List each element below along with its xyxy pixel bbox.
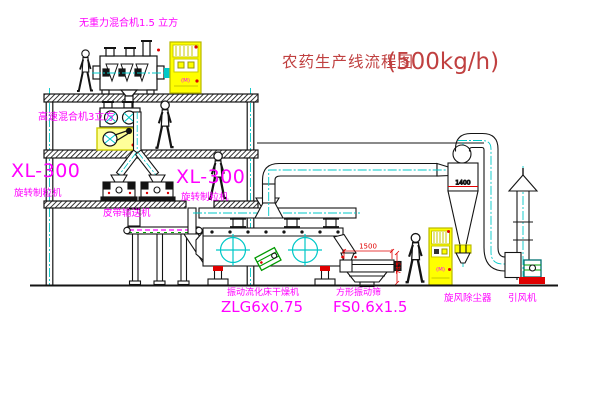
person-figure-level2 xyxy=(155,101,173,148)
label-cyclone: 旋风除尘器 xyxy=(444,292,492,304)
cyclone-dimension-text: 1400 xyxy=(455,180,470,187)
indicator-dot xyxy=(448,268,451,271)
label-belt-conveyor: 皮带输送机 xyxy=(103,207,151,219)
label-dryer-name: 振动流化床干燥机 xyxy=(227,286,299,298)
label-granulator-model-left: XL-300 xyxy=(11,160,80,182)
control-cabinet-top: (M) xyxy=(170,42,201,93)
label-sieve-name: 方形振动筛 xyxy=(336,286,381,298)
control-cabinet-right: (M) xyxy=(429,228,452,285)
label-granulator-model-right: XL-300 xyxy=(176,166,245,188)
label-sieve-model: FS0.6x1.5 xyxy=(333,298,407,316)
cabinet-badge-top: (M) xyxy=(181,78,190,84)
indicator-dot xyxy=(447,230,450,233)
floor-slab-3-left xyxy=(44,201,186,208)
granulator-right xyxy=(139,175,175,201)
person-figure-ground xyxy=(406,234,425,283)
floor-slab-2 xyxy=(44,150,258,158)
sieve-length-dimension: 1500 xyxy=(359,243,377,251)
indicator-dot xyxy=(194,45,197,48)
dryer-stub xyxy=(230,218,339,228)
dryer-spring-foot-left xyxy=(208,266,228,285)
label-fan: 引风机 xyxy=(508,292,537,304)
granulator-left xyxy=(101,175,137,201)
sieve-height-dimension: 745 xyxy=(395,262,403,274)
label-granulator-name-right: 旋转制粒机 xyxy=(181,191,229,203)
drawing-title-capacity: (500kg/h) xyxy=(387,49,499,75)
floor-slab-1 xyxy=(44,94,258,102)
person-figure-top xyxy=(77,50,93,91)
label-highspeed-mixer: 高速混合机3立方 xyxy=(38,110,114,123)
indicator-dot xyxy=(195,79,198,82)
cabinet-badge-right: (M) xyxy=(436,267,445,273)
label-granulator-name-left: 旋转制粒机 xyxy=(14,187,62,199)
flow-diagram: (M) xyxy=(0,0,600,403)
dryer-spring-foot-right xyxy=(315,266,335,285)
fan-base xyxy=(519,277,545,284)
label-dryer-model: ZLG6x0.75 xyxy=(221,298,303,316)
label-gravity-mixer: 无重力混合机1.5 立方 xyxy=(79,16,178,29)
cad-drawing-canvas: (M) xyxy=(0,0,600,403)
